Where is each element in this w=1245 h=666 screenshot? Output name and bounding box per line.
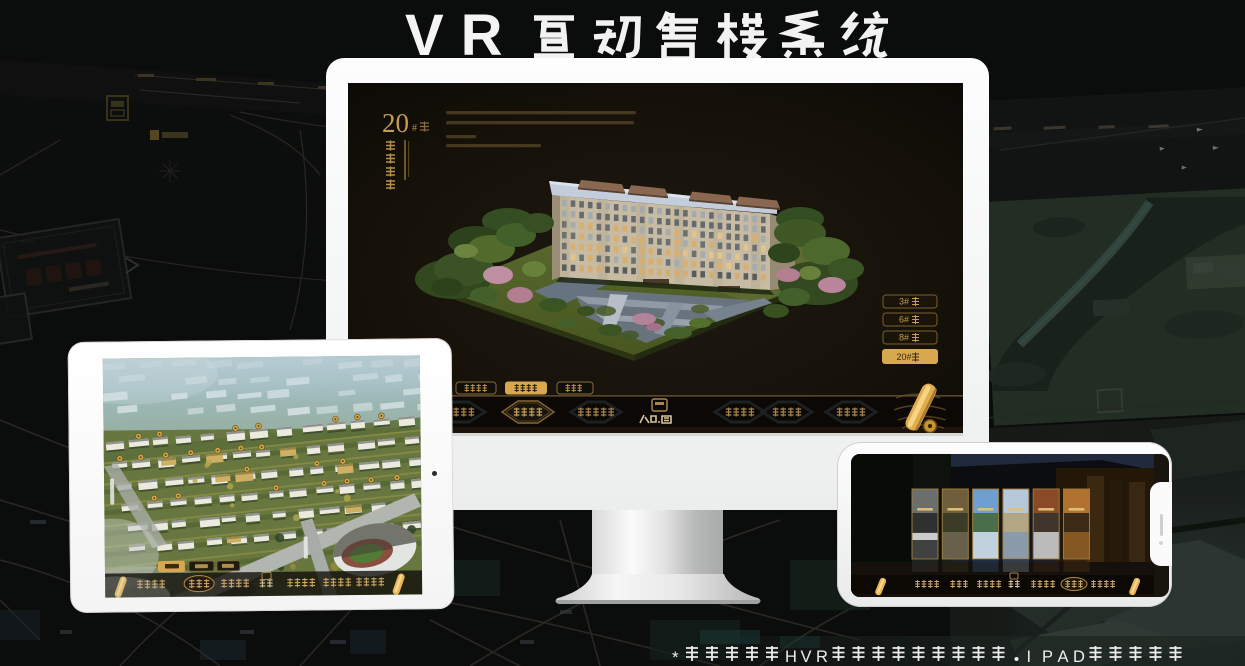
svg-text:8#: 8# xyxy=(899,333,909,343)
svg-text:3#: 3# xyxy=(899,297,909,307)
svg-text:A: A xyxy=(1058,648,1069,666)
svg-text:H: H xyxy=(785,648,797,666)
svg-text:VR: VR xyxy=(405,6,520,60)
svg-text:I: I xyxy=(1027,648,1032,666)
svg-text:R: R xyxy=(816,648,828,666)
svg-text:#: # xyxy=(412,123,417,134)
svg-text:*: * xyxy=(672,648,679,666)
svg-text:P: P xyxy=(1042,648,1053,666)
svg-text:V: V xyxy=(801,648,812,666)
svg-text:6#: 6# xyxy=(899,315,909,325)
svg-text:D: D xyxy=(1073,648,1085,666)
svg-text:20: 20 xyxy=(382,108,409,138)
svg-text:20#: 20# xyxy=(896,352,911,362)
